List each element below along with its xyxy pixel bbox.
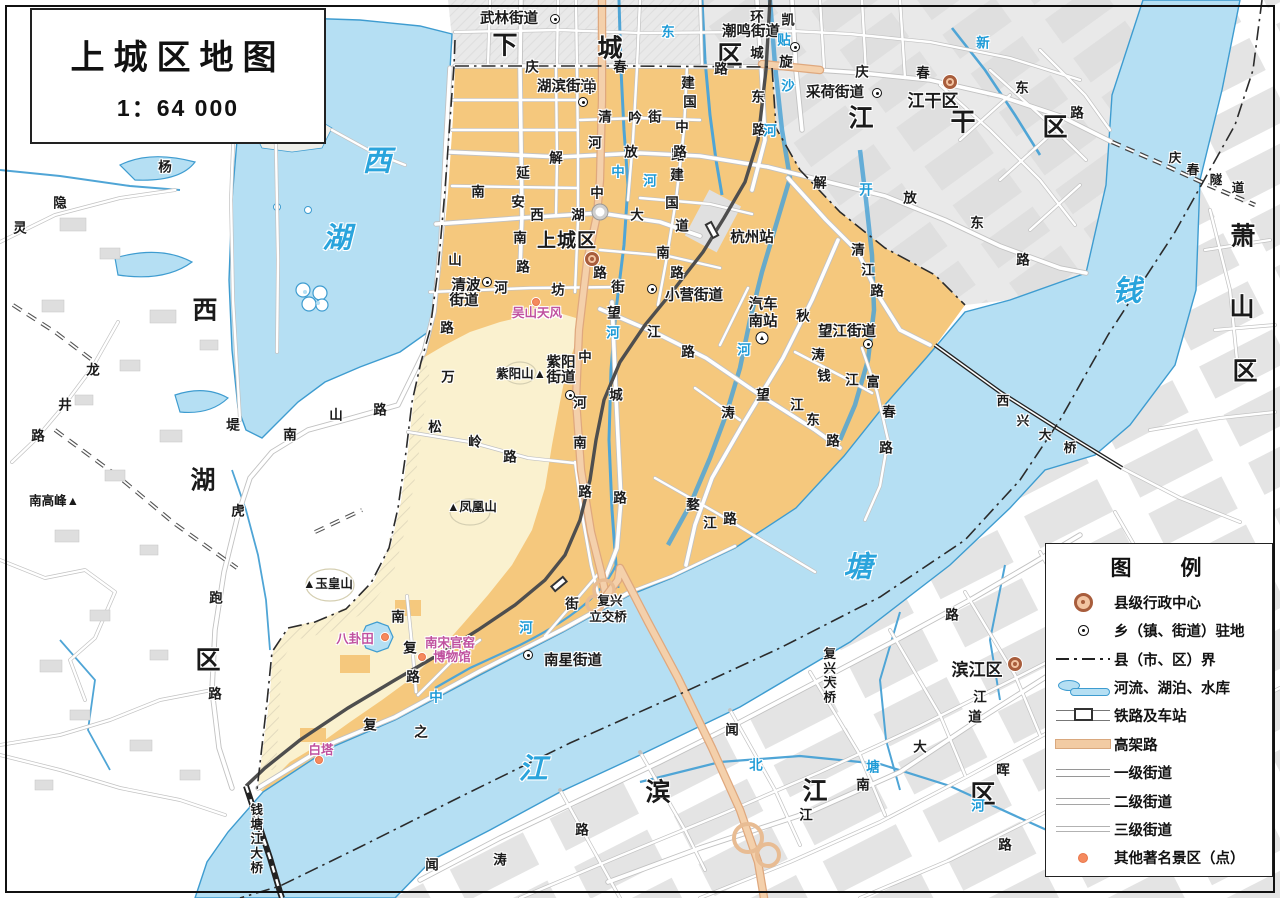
r3-legend-icon: [1052, 826, 1114, 832]
legend-item-admin: 县级行政中心: [1052, 588, 1264, 616]
legend-box: 图 例 县级行政中心乡（镇、街道）驻地县（市、区）界河流、湖泊、水库铁路及车站高…: [1045, 543, 1273, 877]
legend-item-label: 县级行政中心: [1114, 592, 1201, 613]
legend-item-rail: 铁路及车站: [1052, 702, 1264, 730]
legend-item-label: 河流、湖泊、水库: [1114, 677, 1230, 698]
map-title: 上城区地图: [71, 30, 286, 79]
legend-item-label: 乡（镇、街道）驻地: [1114, 620, 1245, 641]
water-legend-icon: [1052, 680, 1114, 694]
legend-item-label: 二级街道: [1114, 791, 1172, 812]
legend-item-label: 高架路: [1114, 734, 1158, 755]
legend-item-scenic: 其他著名景区（点）: [1052, 844, 1264, 872]
r2-legend-icon: [1052, 798, 1114, 805]
legend-item-label: 其他著名景区（点）: [1114, 847, 1245, 868]
legend-item-label: 三级街道: [1114, 819, 1172, 840]
legend-item-water: 河流、湖泊、水库: [1052, 673, 1264, 701]
legend-item-seat: 乡（镇、街道）驻地: [1052, 616, 1264, 644]
legend-item-r3: 三级街道: [1052, 815, 1264, 843]
map-page: 上城区下城区江干区滨江区萧山区西湖区江干区滨江区武林街道潮鸣街道湖滨街道采荷街道…: [0, 0, 1280, 898]
scenic-legend-icon: [1052, 853, 1114, 863]
seat-legend-icon: [1052, 625, 1114, 636]
r1-legend-icon: [1052, 769, 1114, 777]
legend-item-label: 县（市、区）界: [1114, 649, 1216, 670]
legend-item-boundary: 县（市、区）界: [1052, 645, 1264, 673]
legend-item-r1: 一级街道: [1052, 758, 1264, 786]
legend-rows: 县级行政中心乡（镇、街道）驻地县（市、区）界河流、湖泊、水库铁路及车站高架路一级…: [1052, 588, 1264, 872]
map-scale: 1：64 000: [117, 89, 239, 123]
legend-title: 图 例: [1062, 552, 1264, 582]
legend-item-label: 铁路及车站: [1114, 705, 1187, 726]
admin-legend-icon: [1052, 593, 1114, 612]
rail-legend-icon: [1052, 710, 1114, 721]
elev-legend-icon: [1052, 739, 1114, 749]
title-box: 上城区地图 1：64 000: [30, 8, 326, 144]
legend-item-label: 一级街道: [1114, 762, 1172, 783]
legend-item-r2: 二级街道: [1052, 787, 1264, 815]
boundary-legend-icon: [1052, 658, 1114, 660]
legend-item-elev: 高架路: [1052, 730, 1264, 758]
